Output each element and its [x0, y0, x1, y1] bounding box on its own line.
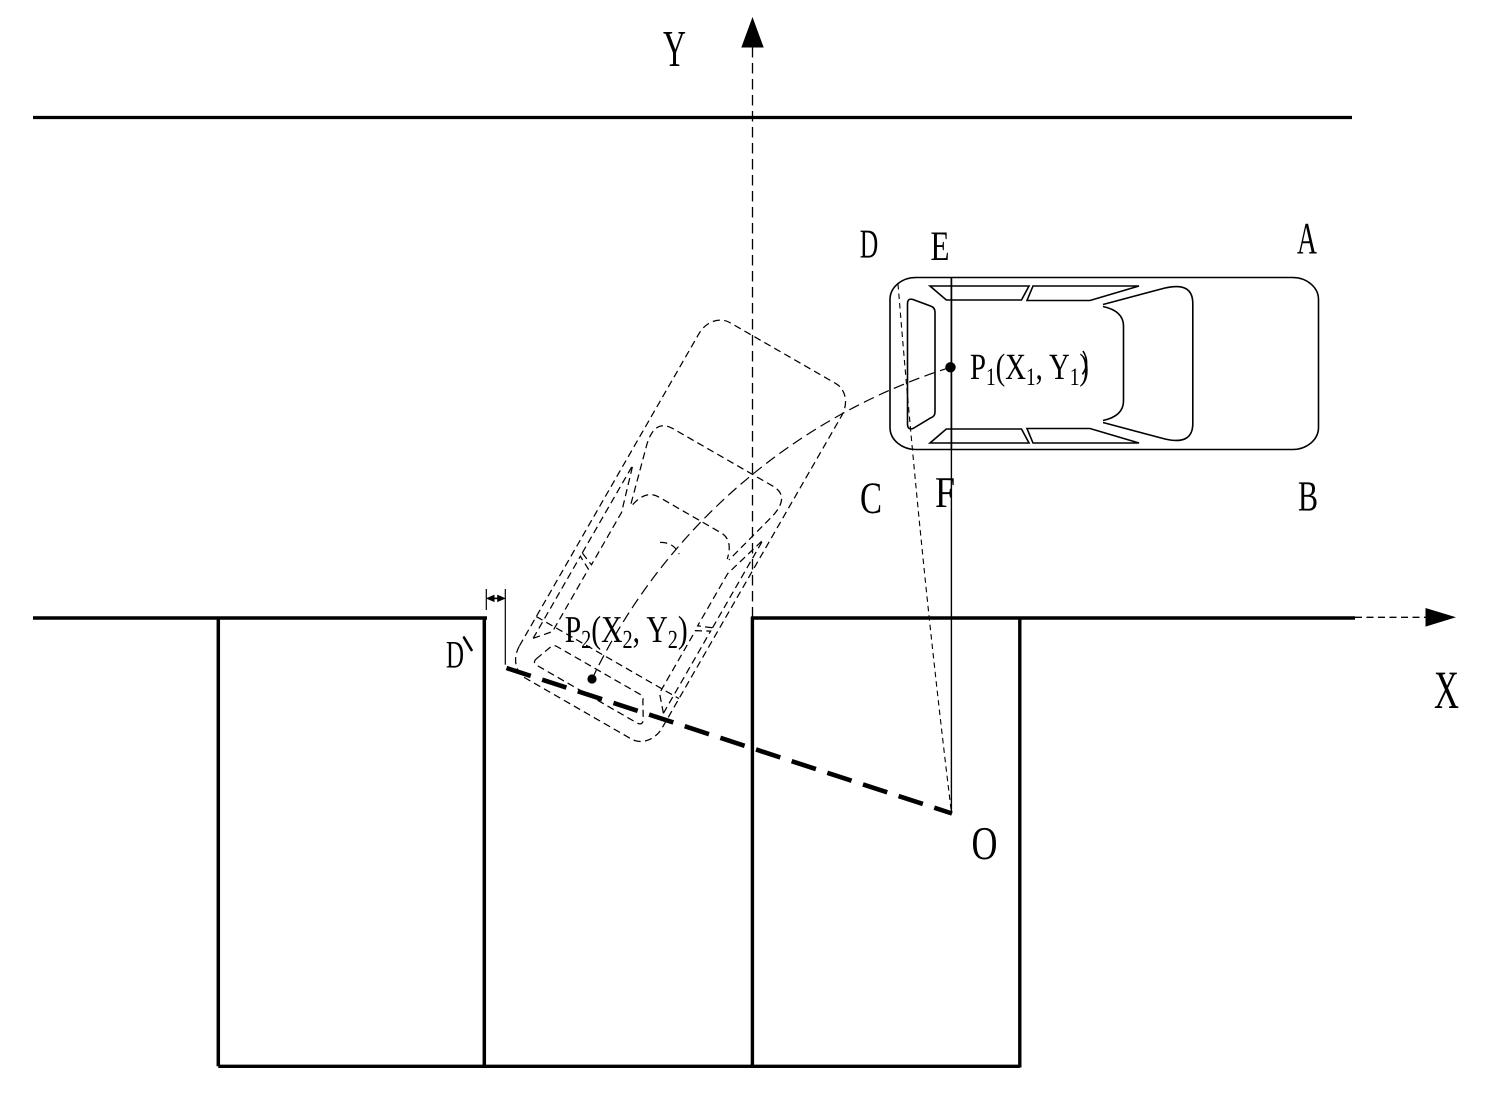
svg-text:Y: Y	[663, 21, 686, 78]
svg-text:O: O	[972, 818, 998, 870]
svg-text:P2(X2, Y2): P2(X2, Y2)	[565, 609, 688, 654]
svg-text:B: B	[1298, 473, 1318, 520]
svg-text:F: F	[935, 468, 955, 517]
svg-text:P1(X1, Y1): P1(X1, Y1)	[970, 347, 1089, 391]
svg-text:A: A	[1297, 213, 1317, 263]
svg-text:D: D	[446, 634, 464, 677]
svg-text:D: D	[860, 220, 879, 266]
svg-text:C: C	[860, 473, 882, 523]
svg-text:E: E	[931, 224, 950, 270]
svg-text:X: X	[1434, 660, 1459, 720]
